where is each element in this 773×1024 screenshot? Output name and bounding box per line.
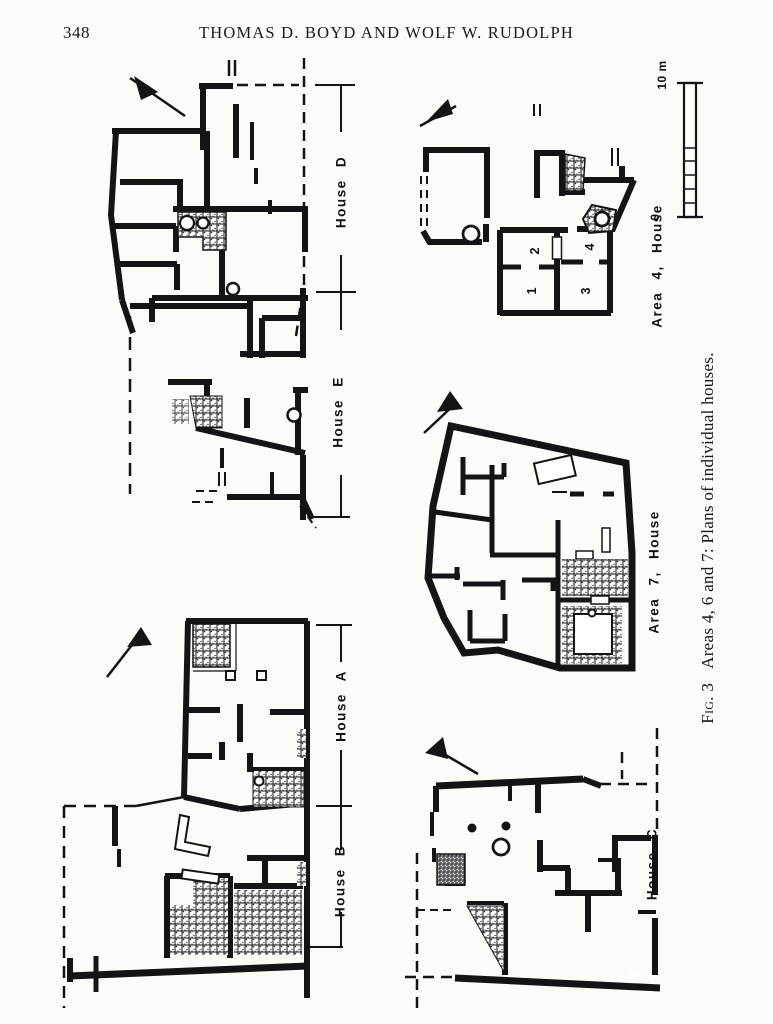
scale-bar [677,83,703,217]
house-e-walls [168,382,312,520]
scale-max-label: 10 m [655,60,669,89]
house-a-stipple-court [253,770,304,807]
plan-houses-d-e [111,58,356,528]
plan-houses-a-b [64,621,352,1008]
room-number-3: 3 [579,288,593,295]
house-b-stipple-room-1 [170,878,228,955]
house-a-stipple-room [193,624,230,667]
north-arrow-icon [130,76,185,116]
journal-page: 348 THOMAS D. BOYD AND WOLF W. RUDOLPH [0,0,773,1024]
figure-caption: Fig. 3Areas 4, 6 and 7: Plans of individ… [698,352,718,724]
label-house-c: House C [645,828,660,900]
label-house-b: House B [333,845,348,917]
house-c-well [493,839,509,855]
plan-area4-house [420,99,634,315]
house-d-basin [180,216,194,230]
house-a-well [255,777,264,786]
label-house-d: House D [334,156,349,228]
area7-cistern [574,614,612,654]
house-a-post-base [226,671,235,680]
house-d-e-brackets [313,85,356,517]
house-b-threshold-bar [181,870,219,884]
house-d-well [227,283,239,295]
house-c-stipple-corner [467,906,504,972]
label-house-e: House E [331,376,346,448]
figure-caption-number: Fig. 3 [698,683,717,724]
house-b-stipple-room-2 [234,890,302,955]
house-c-post-hole [502,822,511,831]
north-arrow-icon [425,737,478,774]
house-a-post-base [257,671,266,680]
label-house-a: House A [334,670,349,742]
north-arrow-icon [107,627,152,677]
room-number-1: 1 [525,288,539,295]
figure-caption-text: Areas 4, 6 and 7: Plans of individual ho… [698,352,717,669]
label-area4-house: Area 4, House [650,204,665,328]
label-area7-house: Area 7, House [647,510,662,634]
house-d-pithos [198,218,209,229]
street-dashed-line [237,58,304,336]
area4-pithos [595,212,609,226]
house-c-post-hole [468,824,477,833]
house-e-well [288,409,301,422]
scale-zero-label: 0 [648,213,662,220]
plan-area7-house [424,391,632,668]
area4-stipple-north [565,154,585,191]
house-b-threshold-l [175,815,210,856]
area7-stipple-room-north [562,559,628,596]
house-c-walls [436,779,660,988]
north-arrow-icon [420,99,456,126]
area4-threshold [553,237,562,259]
house-c-stair-feature [437,854,465,885]
area4-courtyard-well [463,226,479,242]
room-number-2: 2 [528,248,542,255]
plan-house-c [405,728,660,1008]
house-e-stipple [190,396,222,428]
area7-threshold-slab [534,455,576,484]
room-number-4: 4 [583,244,597,251]
